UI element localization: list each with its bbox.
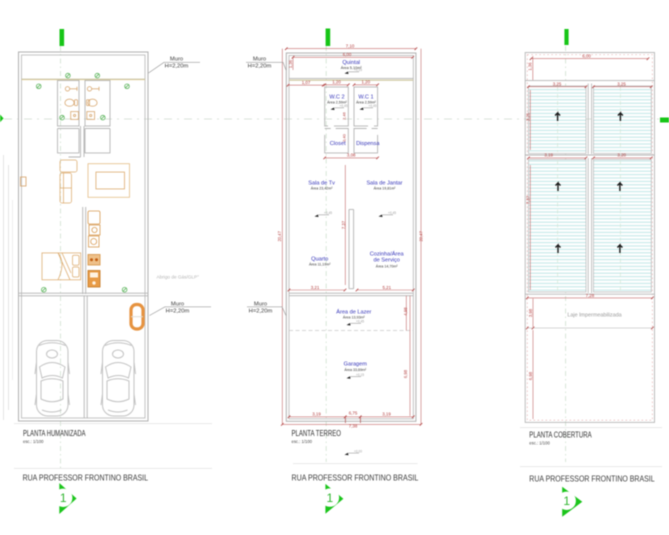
svg-text:7,10: 7,10 <box>346 44 355 49</box>
svg-text:PLANTA COBERTURA: PLANTA COBERTURA <box>529 431 592 440</box>
svg-text:+0,00: +0,00 <box>354 450 362 454</box>
svg-text:4,98: 4,98 <box>403 307 408 316</box>
svg-text:1,07: 1,07 <box>302 80 311 85</box>
svg-text:+0,45: +0,45 <box>340 104 348 108</box>
svg-text:Garagem: Garagem <box>344 361 368 367</box>
svg-text:Dispensa: Dispensa <box>356 141 380 147</box>
svg-text:Área 11,19m²: Área 11,19m² <box>309 263 331 267</box>
svg-text:+0,45: +0,45 <box>324 211 332 215</box>
svg-text:Muro: Muro <box>254 301 267 307</box>
svg-text:esc.: 1/100: esc.: 1/100 <box>292 439 313 444</box>
svg-text:7,37: 7,37 <box>341 220 346 229</box>
svg-text:Muro: Muro <box>170 57 183 63</box>
svg-text:RUA PROFESSOR FRONTINO BRASIL: RUA PROFESSOR FRONTINO BRASIL <box>23 473 149 483</box>
svg-text:2,46: 2,46 <box>342 111 347 120</box>
svg-text:RUA PROFESSOR FRONTINO BRASIL: RUA PROFESSOR FRONTINO BRASIL <box>529 474 655 484</box>
svg-text:+0,15: +0,15 <box>354 68 362 72</box>
svg-text:6,98: 6,98 <box>528 371 533 380</box>
svg-text:PLANTA TERREO: PLANTA TERREO <box>292 429 342 438</box>
svg-text:3,25: 3,25 <box>617 81 626 86</box>
svg-text:6,75: 6,75 <box>349 411 358 416</box>
svg-text:1: 1 <box>60 491 67 505</box>
svg-text:Abrigo de Gás/GLP°: Abrigo de Gás/GLP° <box>157 275 200 280</box>
svg-text:5,21: 5,21 <box>383 285 392 290</box>
svg-text:3,20: 3,20 <box>617 153 626 158</box>
svg-text:H=2,20m: H=2,20m <box>165 64 189 70</box>
svg-text:H=2,20m: H=2,20m <box>249 308 273 314</box>
svg-text:de Serviço: de Serviço <box>373 258 399 264</box>
svg-text:6,98: 6,98 <box>403 369 408 378</box>
svg-text:PLANTA HUMANIZADA: PLANTA HUMANIZADA <box>23 429 86 438</box>
svg-text:3,25: 3,25 <box>553 81 562 86</box>
svg-text:3,21: 3,21 <box>311 285 320 290</box>
svg-text:1,36: 1,36 <box>288 59 293 68</box>
svg-text:Cozinha/Área: Cozinha/Área <box>370 250 405 257</box>
svg-text:Muro: Muro <box>171 301 184 307</box>
svg-text:RUA PROFESSOR FRONTINO BRASIL: RUA PROFESSOR FRONTINO BRASIL <box>292 473 419 483</box>
svg-text:3,08: 3,08 <box>347 153 356 158</box>
svg-text:3,19: 3,19 <box>544 153 553 158</box>
svg-text:Área de Lazer: Área de Lazer <box>336 308 371 315</box>
svg-text:Área 33,69m²: Área 33,69m² <box>344 368 367 372</box>
svg-text:20,47: 20,47 <box>418 230 423 241</box>
svg-text:6,00: 6,00 <box>582 54 591 59</box>
svg-text:3,19: 3,19 <box>382 412 391 417</box>
svg-text:H=2,20m: H=2,20m <box>166 308 190 314</box>
svg-text:Área 19,81m²: Área 19,81m² <box>374 187 397 191</box>
svg-text:+0,45: +0,45 <box>388 211 396 215</box>
svg-text:7,37: 7,37 <box>525 195 530 204</box>
svg-text:1,36: 1,36 <box>528 62 533 71</box>
svg-text:Muro: Muro <box>253 57 266 63</box>
svg-text:1,20: 1,20 <box>362 80 371 85</box>
svg-text:7,28: 7,28 <box>586 293 595 298</box>
svg-text:1,20: 1,20 <box>332 80 341 85</box>
svg-text:esc.: 1/100: esc.: 1/100 <box>529 441 550 446</box>
svg-text:1: 1 <box>563 494 570 508</box>
svg-text:Área 14,70m²: Área 14,70m² <box>376 264 399 268</box>
svg-text:Laje Impermeabilizada: Laje Impermeabilizada <box>567 313 621 319</box>
svg-text:H=2,20m: H=2,20m <box>248 64 272 70</box>
svg-text:+0,45: +0,45 <box>369 104 377 108</box>
svg-text:3,25: 3,25 <box>525 112 530 121</box>
svg-text:7,38: 7,38 <box>349 423 358 428</box>
svg-text:1: 1 <box>327 491 334 505</box>
svg-text:Área 23,42m²: Área 23,42m² <box>311 187 334 191</box>
svg-text:20,47: 20,47 <box>277 230 282 241</box>
svg-text:Closet: Closet <box>330 141 346 147</box>
svg-text:+0,45: +0,45 <box>356 320 364 324</box>
svg-text:+0,15: +0,15 <box>356 373 364 377</box>
svg-text:3,19: 3,19 <box>312 412 321 417</box>
svg-text:6,00: 6,00 <box>343 52 352 57</box>
svg-text:esc.: 1/100: esc.: 1/100 <box>23 439 44 444</box>
svg-text:3,98: 3,98 <box>528 308 533 317</box>
